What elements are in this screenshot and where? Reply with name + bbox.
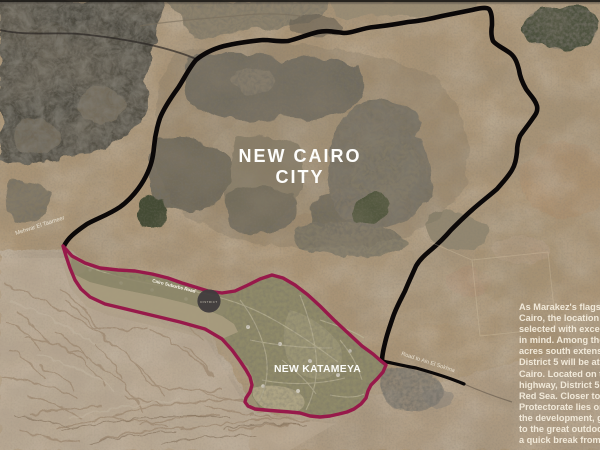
svg-text:DISTRICT: DISTRICT [200, 300, 217, 304]
